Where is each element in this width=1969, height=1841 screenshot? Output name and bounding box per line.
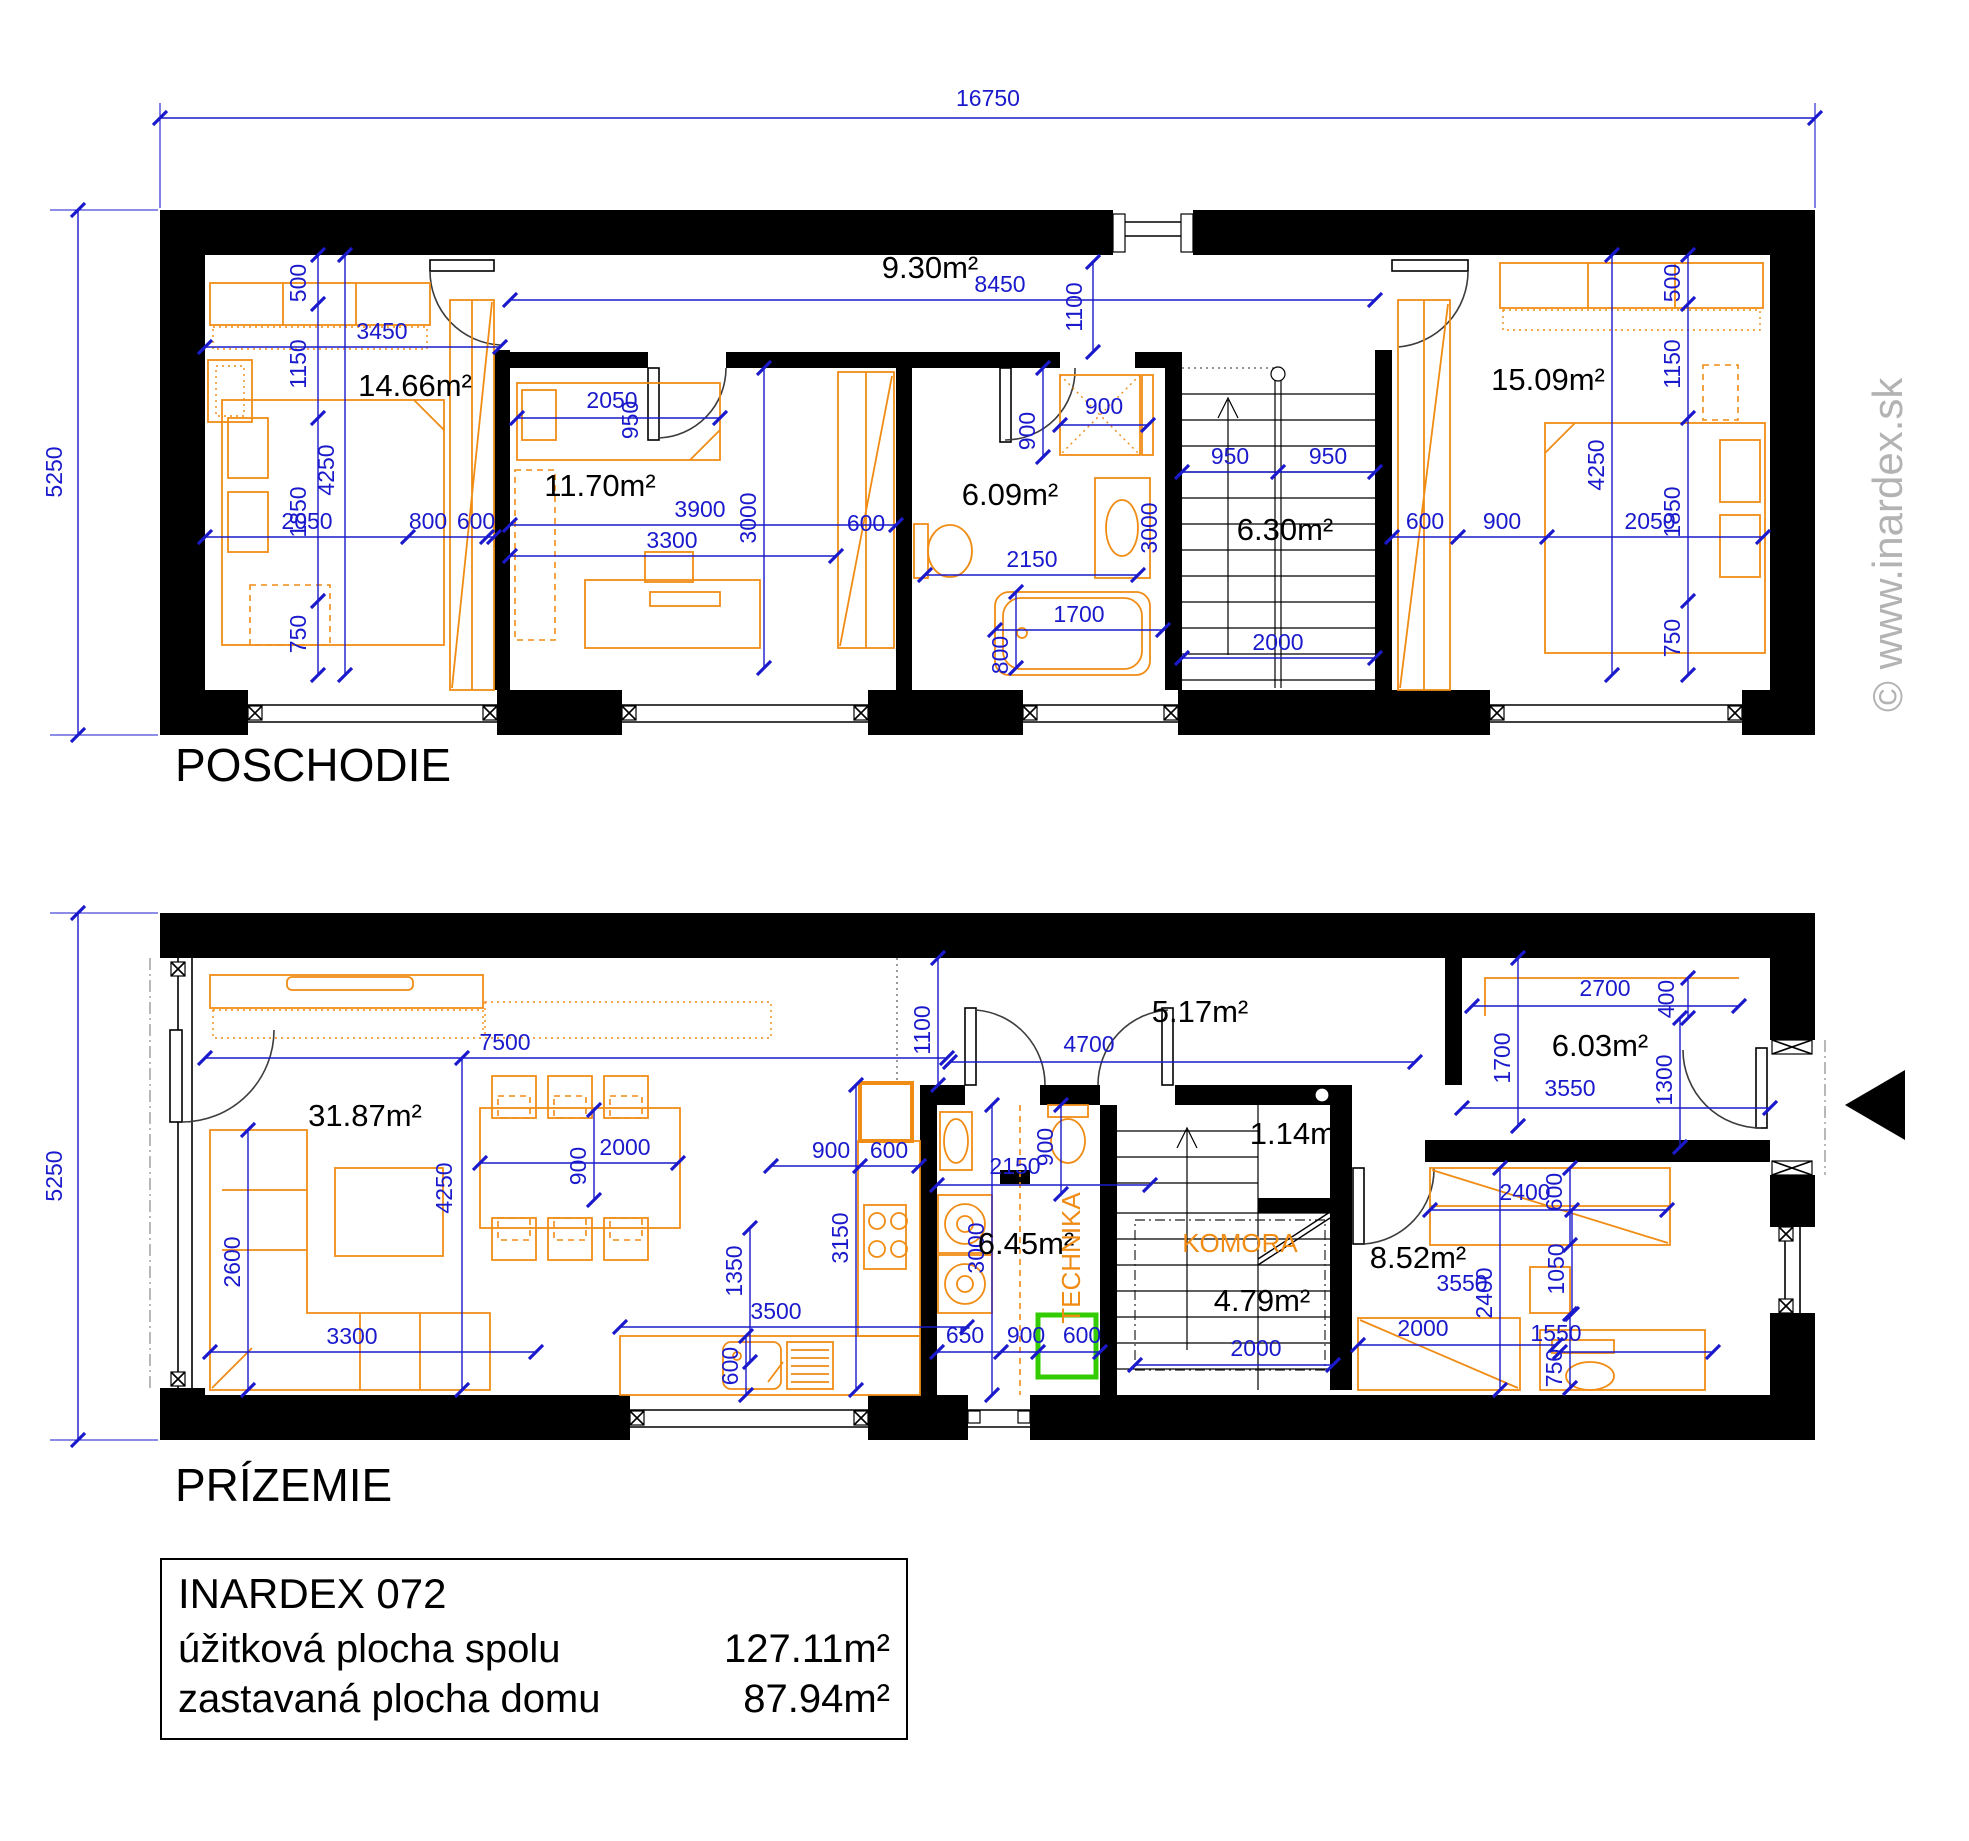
dimension-label: 400 — [1653, 980, 1679, 1018]
dimension-label: 3000 — [1136, 502, 1162, 553]
dimension-label: 750 — [1659, 619, 1685, 657]
floorplan-sheet: 1675052508450110034505001150425018507502… — [0, 0, 1969, 1841]
dimension-label: 3900 — [674, 496, 725, 522]
dimension-label: 1100 — [909, 1005, 935, 1054]
dimension-label: 2700 — [1579, 975, 1630, 1001]
dimension-label: 600 — [870, 1137, 908, 1163]
dimension-label: 1150 — [1659, 339, 1685, 388]
room-area-label: 1.14m² — [1250, 1116, 1346, 1151]
dimension-label: 950 — [617, 401, 643, 439]
ground-left-glazing — [150, 958, 274, 1390]
bed-double — [1545, 423, 1765, 653]
dimension-label: 900 — [1483, 508, 1521, 534]
dimension-label: 600 — [1406, 508, 1444, 534]
room-area-label: 6.09m² — [962, 477, 1058, 512]
coffee-table — [335, 1168, 443, 1256]
fridge — [860, 1083, 912, 1141]
dimension-label: 900 — [565, 1147, 591, 1185]
built-up-area-value: 87.94m² — [743, 1674, 890, 1724]
room-area-label: 6.30m² — [1237, 512, 1333, 547]
tv — [287, 977, 413, 990]
dimension-label: 2600 — [219, 1236, 245, 1287]
dimension-label: 2400 — [1471, 1267, 1497, 1318]
built-up-area-label: zastavaná plocha domu — [178, 1674, 601, 1724]
room-name-label: KOMORA — [1182, 1228, 1298, 1258]
dimension-label: 650 — [946, 1322, 984, 1348]
dimension-label: 2000 — [599, 1134, 650, 1160]
dimension-label: 600 — [457, 508, 495, 534]
upper-floor-plan — [50, 103, 1815, 735]
dimension-label: 3550 — [1544, 1075, 1595, 1101]
dimension-label: 1700 — [1053, 601, 1104, 627]
toilet — [1048, 1105, 1088, 1117]
dimension-label: 750 — [285, 615, 311, 653]
dimension-label: 4250 — [431, 1162, 457, 1213]
tv-cabinet — [210, 975, 483, 1008]
title-block: INARDEX 072 úžitková plocha spolu 127.11… — [160, 1558, 908, 1740]
dimension-label: 5250 — [41, 1150, 67, 1201]
dimension-label: 1850 — [1659, 486, 1685, 537]
dimension-label: 3300 — [326, 1323, 377, 1349]
desk — [585, 580, 760, 648]
room-area-label: 14.66m² — [358, 368, 472, 403]
room-area-label: 4.79m² — [1214, 1283, 1310, 1318]
project-name: INARDEX 072 — [178, 1570, 890, 1618]
monitor — [650, 592, 720, 606]
upper-floor-title: POSCHODIE — [175, 738, 451, 792]
dimension-label: 16750 — [956, 85, 1020, 111]
dimension-label: 2000 — [1397, 1315, 1448, 1341]
label-layer: 1675052508450110034505001150425018507502… — [41, 85, 1685, 1387]
room-area-label: 9.30m² — [882, 250, 978, 285]
hob — [864, 1205, 906, 1269]
room-name-label: TECHNIKA — [1056, 1192, 1086, 1324]
upper-doors — [430, 260, 1468, 442]
upper-dimensions — [50, 103, 1815, 735]
upper-bedroom-left-furniture — [208, 283, 494, 690]
room-area-label: 8.52m² — [1370, 1240, 1466, 1275]
dimension-label: 500 — [285, 264, 311, 302]
dimension-label: 900 — [1032, 1128, 1058, 1166]
room-area-label: 11.70m² — [544, 468, 655, 503]
dimension-label: 950 — [1211, 443, 1249, 469]
dimension-label: 4250 — [1583, 439, 1609, 490]
dimension-label: 8450 — [974, 271, 1025, 297]
dimension-label: 1100 — [1061, 282, 1087, 331]
dimension-label: 7500 — [479, 1029, 530, 1055]
toilet — [914, 524, 928, 578]
dimension-label: 3000 — [735, 492, 761, 543]
usable-area-label: úžitková plocha spolu — [178, 1624, 560, 1674]
dimension-label: 4250 — [313, 444, 339, 495]
dimension-label: 1050 — [1543, 1243, 1569, 1294]
dimension-label: 900 — [812, 1137, 850, 1163]
dimension-label: 800 — [987, 636, 1013, 674]
dimension-label: 2150 — [1006, 546, 1057, 572]
dimension-label: 600 — [1541, 1173, 1567, 1211]
usable-area-value: 127.11m² — [724, 1624, 890, 1674]
dimension-label: 800 — [409, 508, 447, 534]
entrance-arrow-icon — [1845, 1070, 1905, 1140]
dimension-label: 2050 — [281, 508, 332, 534]
dimension-label: 3150 — [827, 1212, 853, 1263]
dimension-label: 900 — [1014, 412, 1040, 450]
dimension-label: 950 — [1309, 443, 1347, 469]
dimension-label: 1300 — [1651, 1054, 1677, 1105]
dimension-label: 2000 — [1230, 1335, 1281, 1361]
room-area-label: 15.09m² — [1491, 362, 1605, 397]
dimension-label: 3500 — [750, 1298, 801, 1324]
dimension-label: 600 — [717, 1347, 743, 1385]
room-area-label: 6.03m² — [1552, 1028, 1648, 1063]
kitchen-furniture — [620, 1083, 920, 1395]
ground-doors — [965, 1008, 1434, 1244]
living-room-furniture — [210, 958, 897, 1390]
dimension-label: 1150 — [285, 339, 311, 388]
dimension-label: 3300 — [646, 527, 697, 553]
dimension-label: 4700 — [1063, 1031, 1114, 1057]
dimension-label: 750 — [1541, 1349, 1567, 1387]
dimension-label: 3450 — [356, 318, 407, 344]
upper-bedroom-right-furniture — [1398, 263, 1765, 690]
dimension-label: 1700 — [1489, 1032, 1515, 1083]
dimension-label: 1550 — [1530, 1320, 1581, 1346]
room-area-label: 5.17m² — [1152, 994, 1248, 1029]
dimension-label: 5250 — [41, 446, 67, 497]
watermark: © www.inardex.sk — [1864, 378, 1912, 712]
dimension-label: 2000 — [1252, 629, 1303, 655]
dimension-label: 600 — [1063, 1322, 1101, 1348]
ground-dimensions — [50, 913, 1770, 1440]
room-area-label: 31.87m² — [308, 1098, 422, 1133]
kitchen-counter — [620, 1336, 920, 1395]
dimension-label: 500 — [1659, 264, 1685, 302]
dimension-label: 900 — [1007, 1322, 1045, 1348]
dimension-label: 900 — [1085, 393, 1123, 419]
dimension-label: 1350 — [721, 1245, 747, 1296]
dimension-label: 600 — [847, 510, 885, 536]
ground-floor-title: PRÍZEMIE — [175, 1458, 392, 1512]
